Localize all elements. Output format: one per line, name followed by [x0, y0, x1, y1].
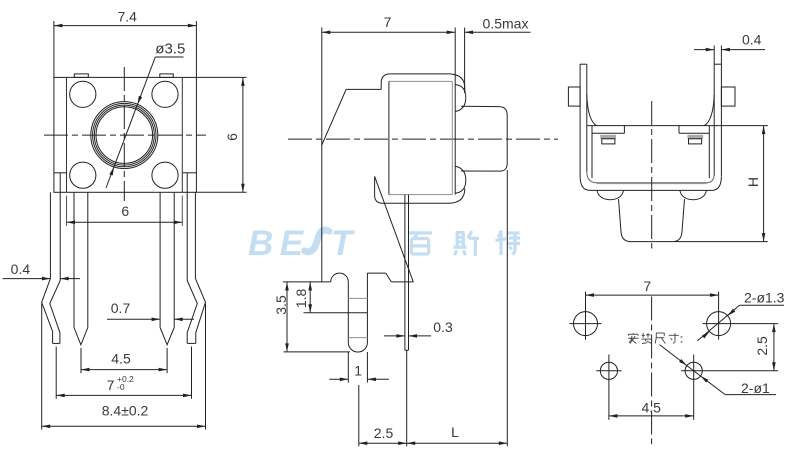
svg-text:0.5max: 0.5max: [483, 16, 529, 32]
svg-text:2-ø1: 2-ø1: [741, 380, 770, 396]
svg-text:7: 7: [643, 278, 651, 294]
svg-text:7: 7: [384, 14, 392, 30]
svg-text:4.5: 4.5: [111, 351, 131, 367]
svg-text:3.5: 3.5: [273, 295, 289, 315]
svg-text:1: 1: [354, 363, 362, 379]
svg-text:8.4±0.2: 8.4±0.2: [102, 403, 149, 419]
svg-text:7.4: 7.4: [117, 9, 137, 25]
svg-text:4.5: 4.5: [641, 400, 661, 416]
svg-text:2-ø1.3: 2-ø1.3: [744, 290, 785, 306]
svg-text:0.4: 0.4: [742, 32, 762, 48]
svg-text:6: 6: [224, 133, 240, 141]
svg-text:H: H: [745, 177, 761, 187]
svg-text:0.3: 0.3: [433, 319, 453, 335]
svg-text:2.5: 2.5: [374, 425, 394, 441]
svg-text:0.4: 0.4: [11, 261, 31, 277]
svg-text:-0: -0: [117, 382, 125, 392]
svg-text:T: T: [331, 224, 355, 263]
svg-text:0.7: 0.7: [111, 300, 131, 316]
svg-text:6: 6: [121, 203, 129, 219]
svg-text:L: L: [451, 424, 459, 440]
svg-text:7: 7: [107, 377, 115, 393]
svg-text:BE: BE: [248, 224, 310, 263]
svg-text:ø3.5: ø3.5: [155, 41, 185, 58]
svg-text:1.8: 1.8: [293, 288, 309, 308]
svg-text:2.5: 2.5: [754, 336, 770, 356]
